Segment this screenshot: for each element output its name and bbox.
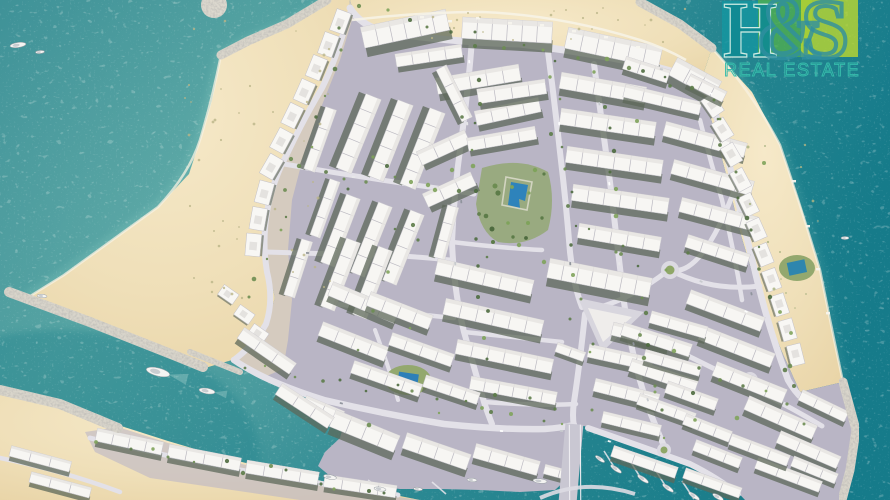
svg-text:REAL ESTATE: REAL ESTATE — [724, 60, 860, 80]
